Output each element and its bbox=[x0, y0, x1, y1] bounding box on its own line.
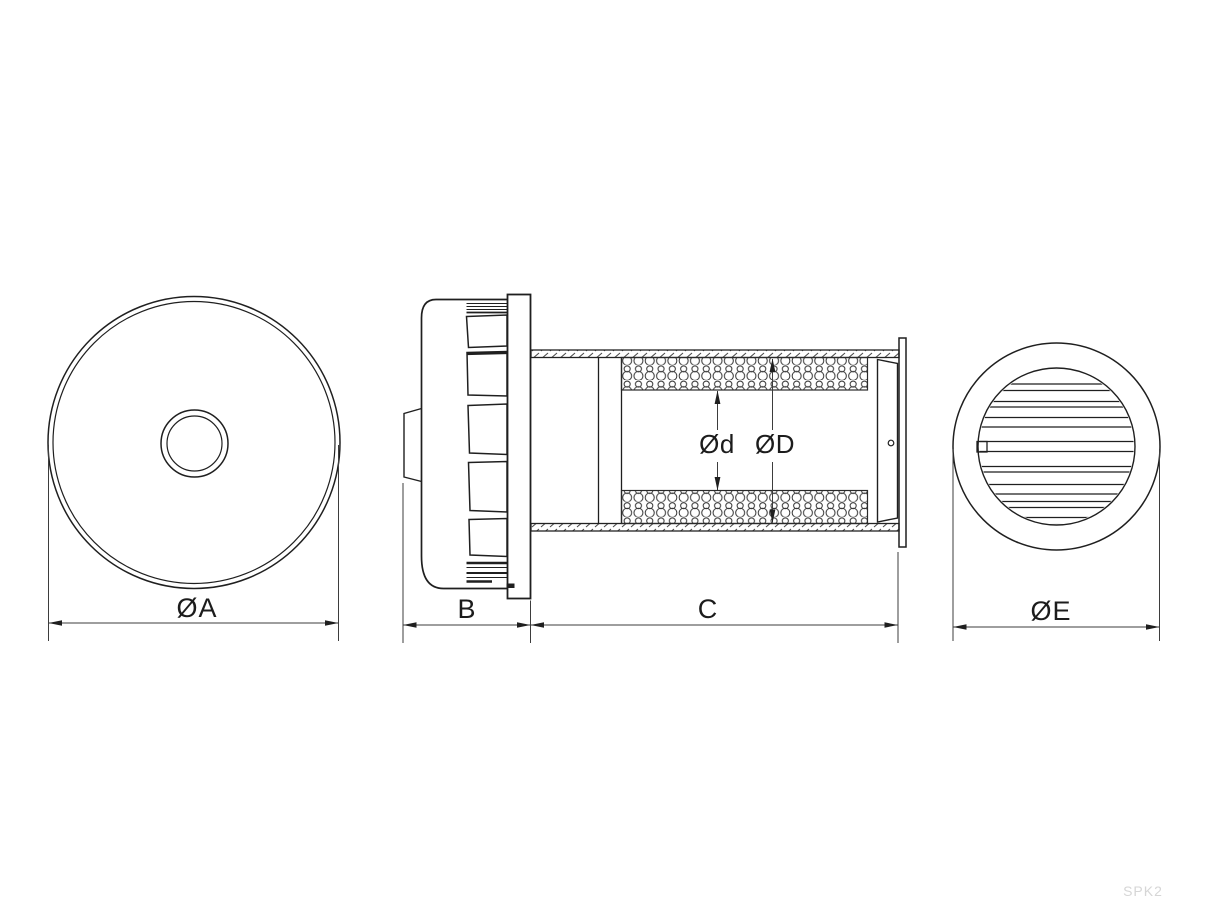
arrow-left-icon bbox=[49, 620, 63, 625]
end-panel bbox=[878, 360, 898, 523]
technical-drawing-page: ØA bbox=[0, 0, 1210, 909]
cap-flange-plate bbox=[508, 295, 531, 599]
cap-slat-3 bbox=[468, 404, 507, 455]
arrow-right-icon bbox=[1146, 624, 1160, 629]
front-diameter-label: ØA bbox=[176, 593, 217, 623]
cap-slat-2-dark-edge bbox=[467, 353, 507, 354]
cap-slat-1 bbox=[467, 315, 508, 348]
cap-depth-label: B bbox=[457, 594, 476, 624]
grille-view bbox=[953, 343, 1160, 550]
duct-length-label: C bbox=[698, 594, 719, 624]
inner-diameter-label: Ød bbox=[699, 429, 735, 459]
insulation-bottom bbox=[622, 491, 868, 524]
side-view-cap bbox=[404, 295, 531, 599]
cap-slat-4 bbox=[469, 462, 508, 513]
arrow-right-icon bbox=[325, 620, 339, 625]
dimension-inner-diameter: Ød bbox=[699, 391, 735, 491]
grille-louvers bbox=[974, 369, 1139, 525]
cap-slat-2 bbox=[467, 352, 507, 397]
cap-flange-mark bbox=[507, 584, 515, 589]
arrow-left-icon bbox=[403, 622, 417, 627]
front-inner-rim bbox=[53, 302, 335, 584]
cap-protrusion bbox=[404, 409, 422, 482]
cap-dome-outline bbox=[422, 300, 508, 589]
drawing-canvas: ØA bbox=[0, 0, 1210, 909]
arrow-up-icon bbox=[715, 391, 721, 405]
grille-outer-rim bbox=[953, 343, 1160, 550]
front-outer-rim bbox=[48, 297, 340, 589]
dimension-front-diameter: ØA bbox=[49, 445, 339, 641]
watermark-text: SPK2 bbox=[1123, 883, 1163, 899]
dimension-duct-length: C bbox=[531, 552, 899, 643]
end-panel-hole bbox=[888, 440, 894, 446]
outer-diameter-label: ØD bbox=[755, 429, 795, 459]
duct-wall-bottom bbox=[531, 524, 899, 532]
arrow-left-icon bbox=[531, 622, 545, 627]
arrow-left-icon bbox=[953, 624, 967, 629]
front-view bbox=[48, 297, 340, 589]
cap-slat-edges-top bbox=[467, 304, 508, 310]
grille-diameter-label: ØE bbox=[1030, 596, 1071, 626]
insulation-top bbox=[622, 358, 868, 391]
duct-wall-top bbox=[531, 350, 899, 358]
sleeve-joint-lines bbox=[599, 358, 622, 524]
arrow-right-icon bbox=[885, 622, 899, 627]
arrow-down-icon bbox=[715, 477, 721, 491]
arrow-right-icon bbox=[517, 622, 531, 627]
front-hub-inner bbox=[167, 416, 222, 471]
cap-slat-5 bbox=[469, 519, 507, 557]
mounting-flange bbox=[899, 338, 906, 547]
front-hub-outer bbox=[161, 410, 228, 477]
